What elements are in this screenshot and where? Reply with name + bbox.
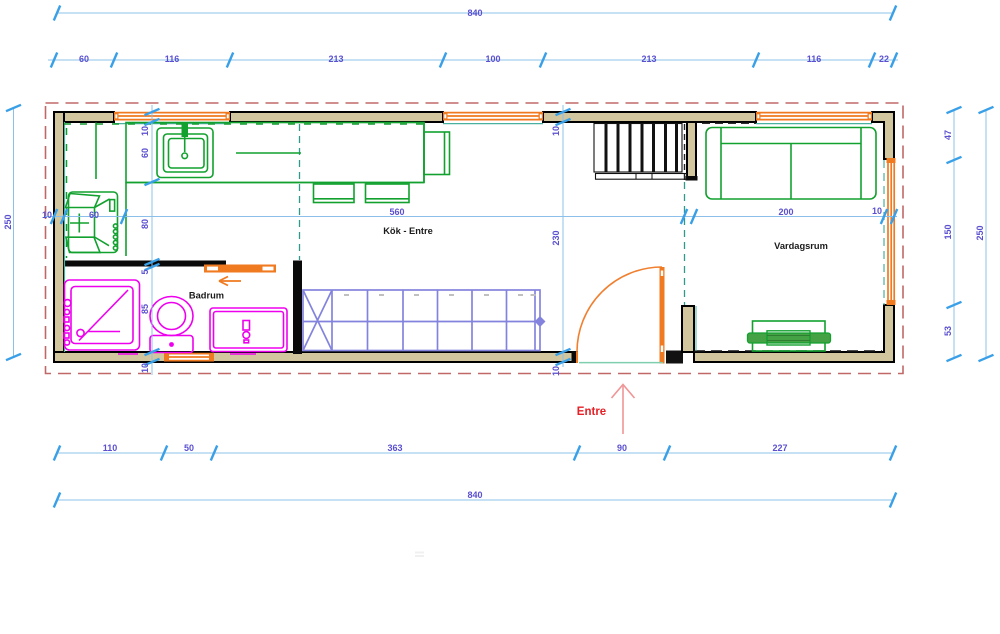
svg-text:560: 560 [389, 207, 404, 217]
svg-text:200: 200 [778, 207, 793, 217]
svg-text:85: 85 [140, 304, 150, 314]
svg-text:100: 100 [485, 54, 500, 64]
svg-text:10: 10 [551, 126, 561, 136]
svg-text:10: 10 [140, 126, 150, 136]
svg-text:Badrum: Badrum [189, 291, 224, 301]
svg-text:213: 213 [641, 54, 656, 64]
svg-text:150: 150 [943, 224, 953, 239]
svg-text:230: 230 [551, 230, 561, 245]
svg-text:Entre: Entre [577, 406, 606, 418]
svg-text:60: 60 [79, 54, 89, 64]
svg-text:227: 227 [772, 443, 787, 453]
svg-text:10: 10 [42, 210, 52, 220]
svg-text:53: 53 [943, 326, 953, 336]
svg-text:5: 5 [140, 269, 150, 274]
svg-text:363: 363 [387, 443, 402, 453]
svg-text:50: 50 [184, 443, 194, 453]
svg-text:Vardagsrum: Vardagsrum [774, 241, 828, 251]
svg-text:213: 213 [328, 54, 343, 64]
svg-text:116: 116 [807, 54, 822, 64]
svg-text:116: 116 [165, 54, 180, 64]
svg-text:250: 250 [3, 214, 13, 229]
svg-text:10: 10 [872, 206, 882, 216]
svg-text:90: 90 [617, 443, 627, 453]
svg-text:60: 60 [89, 210, 99, 220]
svg-text:47: 47 [943, 130, 953, 140]
svg-text:10: 10 [551, 366, 561, 376]
svg-text:110: 110 [103, 443, 118, 453]
svg-text:250: 250 [975, 225, 985, 240]
svg-text:80: 80 [140, 219, 150, 229]
svg-text:840: 840 [467, 490, 482, 500]
svg-text:840: 840 [467, 8, 482, 18]
svg-text:Kök - Entre: Kök - Entre [383, 226, 433, 236]
svg-text:22: 22 [879, 54, 889, 64]
svg-text:10: 10 [140, 363, 150, 373]
svg-text:60: 60 [140, 148, 150, 158]
